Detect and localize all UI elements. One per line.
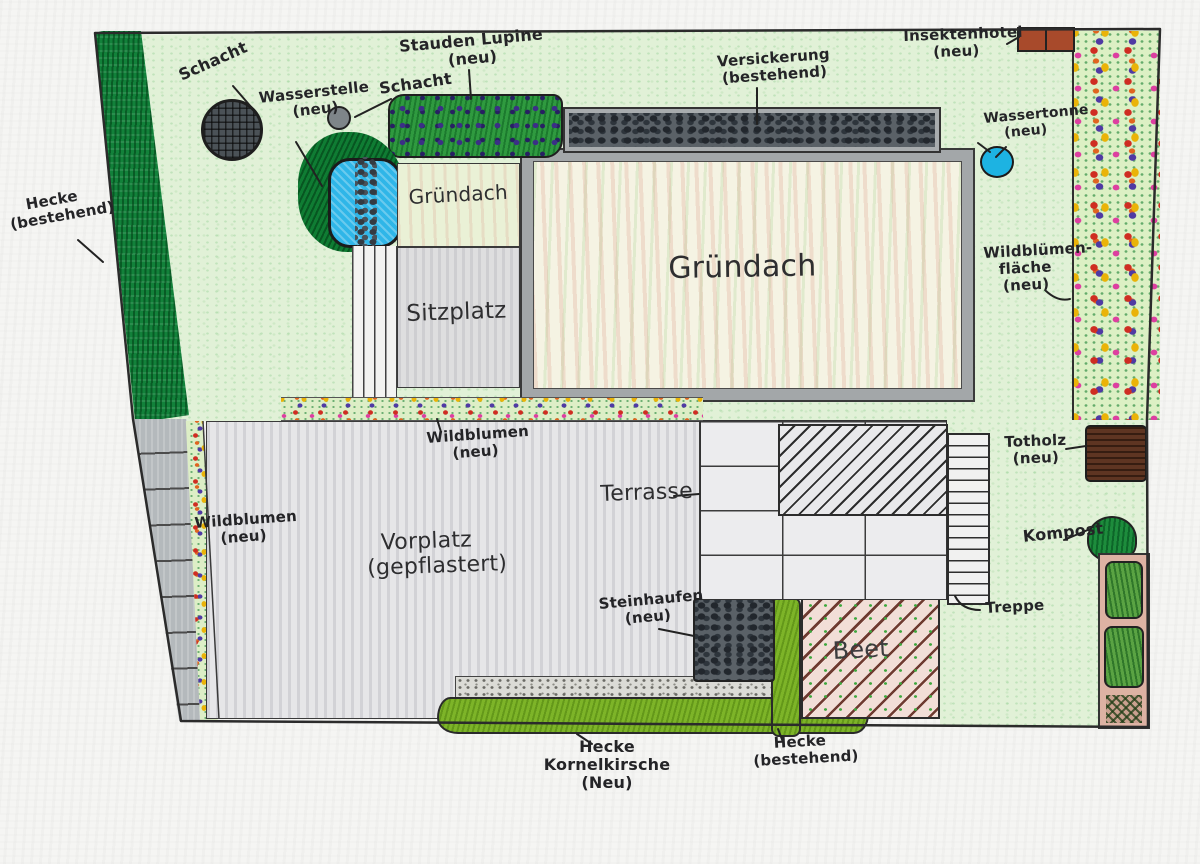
label-beet: Beet: [832, 635, 890, 665]
versickerung-gravel: [569, 113, 935, 147]
kompost-heap-scribble: [1106, 695, 1142, 723]
kompost-bins-frame: [1098, 553, 1150, 729]
stauden-lupine-bed: [388, 94, 563, 158]
steinhaufen-stone-pile: [693, 598, 775, 682]
label-gruendach-klein: Gründach: [408, 181, 508, 209]
label-hecke-links: Hecke (bestehend): [6, 184, 100, 233]
schacht-manhole-large: [201, 99, 263, 161]
hedge-bestehend-vertical: [771, 597, 801, 737]
wildflower-strip-middle: [281, 397, 703, 421]
label-wildblumen-links: Wildblumen (neu): [194, 508, 292, 548]
wildflower-area-right: [1072, 31, 1160, 420]
totholz-wood-pile: [1085, 425, 1147, 482]
deck-step-lines: [352, 246, 397, 401]
pond-stones: [355, 157, 377, 249]
wassertonne-barrel: [980, 146, 1014, 178]
label-sitzplatz: Sitzplatz: [406, 299, 507, 328]
label-vorplatz: Vorplatz (gepflastert): [366, 528, 488, 581]
kompost-bin-2: [1104, 626, 1144, 688]
roof-overhang-hatched: [778, 424, 948, 516]
treppe-stairs: [947, 433, 990, 605]
label-totholz: Totholz (neu): [1003, 432, 1068, 468]
label-insektenhotel: Insektenhotel (neu): [903, 24, 1009, 61]
label-hecke-kornelkirsche: Hecke Kornelkirsche (Neu): [522, 738, 692, 792]
label-wildblumen-mitte: Wildblumen (neu): [426, 423, 524, 463]
label-wildbluemenflaeche: Wildblümen- fläche (neu): [983, 241, 1068, 296]
label-hecke-unten: Hecke (bestehend): [752, 731, 849, 770]
garden-plan-drawing: Schacht Wasserstelle (neu) Schacht Staud…: [0, 0, 1200, 864]
versickerung-trench: [563, 107, 941, 153]
label-gruendach-gross: Gründach: [668, 249, 817, 285]
insektenhotel-blocks: [1017, 27, 1075, 52]
label-treppe: Treppe: [985, 597, 1045, 617]
wasserstelle-pond: [328, 158, 402, 248]
label-terrasse: Terrasse: [600, 480, 693, 508]
kompost-bin-1: [1105, 561, 1143, 619]
